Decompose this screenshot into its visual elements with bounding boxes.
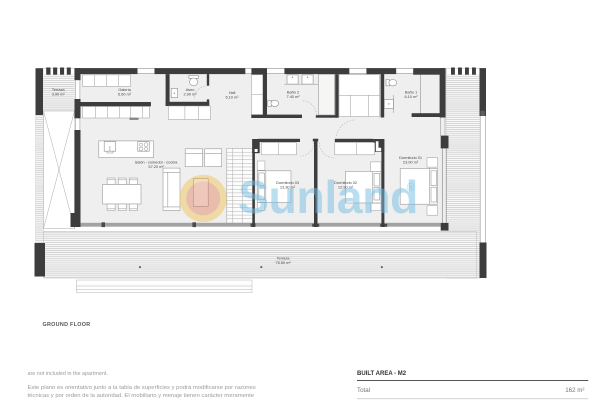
svg-text:BUILT AREA - M2: BUILT AREA - M2 — [357, 371, 407, 377]
svg-text:Sunland: Sunland — [238, 171, 418, 223]
svg-text:57.20 m²: 57.20 m² — [148, 164, 164, 169]
svg-text:Total: Total — [357, 387, 370, 394]
svg-text:6.10 m²: 6.10 m² — [225, 94, 239, 99]
svg-text:6.60 m²: 6.60 m² — [118, 91, 132, 96]
svg-text:Este plano es orientativo junt: Este plano es orientativo junto a la tab… — [28, 385, 256, 391]
svg-text:GROUND FLOOR: GROUND FLOOR — [43, 322, 91, 328]
svg-text:7.40 m²: 7.40 m² — [286, 94, 300, 99]
svg-text:®: ® — [407, 182, 415, 194]
svg-text:técnicas y por orden de la aut: técnicas y por orden de la autoridad. El… — [28, 393, 255, 399]
svg-text:75.50 m²: 75.50 m² — [275, 260, 291, 265]
svg-text:6.10 m²: 6.10 m² — [404, 94, 418, 99]
svg-text:are not included in the apartm: are not included in the apartment. — [28, 371, 108, 377]
svg-text:3.90 m²: 3.90 m² — [52, 91, 66, 96]
svg-text:2.90 m²: 2.90 m² — [183, 91, 197, 96]
svg-text:23.90 m²: 23.90 m² — [403, 160, 419, 165]
svg-text:162 m²: 162 m² — [565, 387, 584, 394]
